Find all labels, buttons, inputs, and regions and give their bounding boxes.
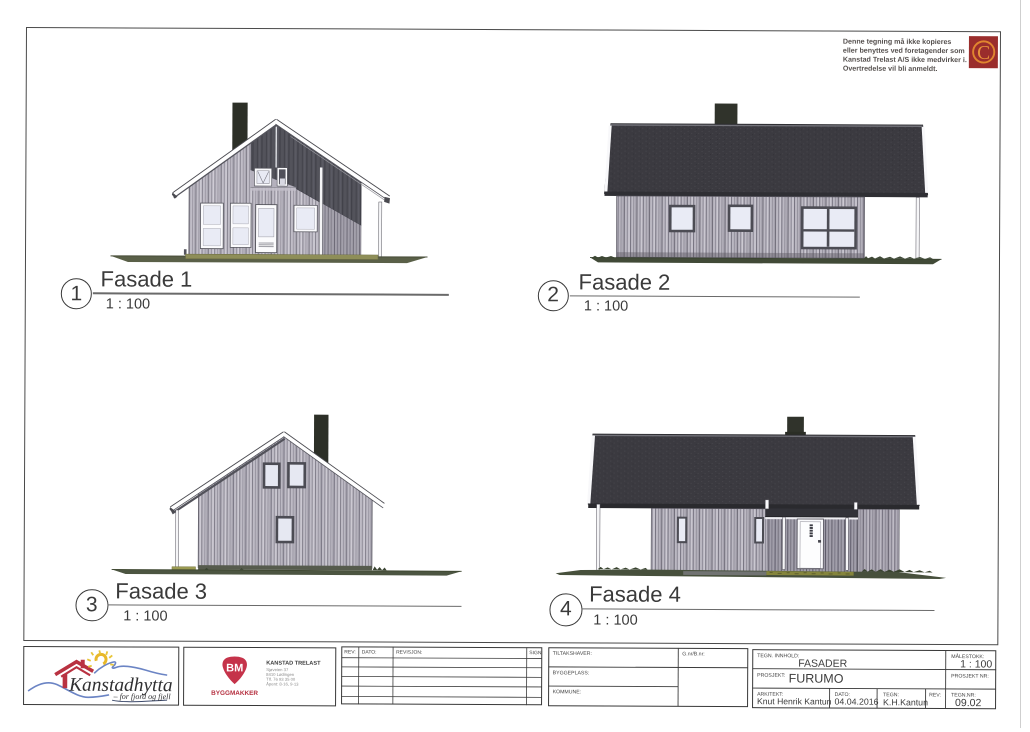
svg-text:FURUMO: FURUMO: [788, 672, 843, 686]
svg-text:REVISJON:: REVISJON:: [396, 650, 422, 656]
svg-text:KANSTAD TRELAST: KANSTAD TRELAST: [266, 660, 321, 666]
svg-text:BYGGEPLASS:: BYGGEPLASS:: [553, 671, 590, 677]
svg-text:09.02: 09.02: [955, 698, 981, 708]
svg-text:G.nr/B.nr:: G.nr/B.nr:: [682, 652, 705, 658]
svg-text:SIGN:: SIGN:: [530, 650, 542, 656]
svg-text:04.04.2016: 04.04.2016: [834, 697, 878, 707]
svg-text:KOMMUNE:: KOMMUNE:: [553, 690, 582, 696]
svg-text:Knut Henrik Kantun: Knut Henrik Kantun: [757, 696, 832, 706]
svg-text:PROSJEKT:: PROSJEKT:: [757, 673, 785, 679]
svg-text:Åpent: 8-16, 9-13: Åpent: 8-16, 9-13: [266, 681, 299, 686]
svg-text:– for fjord og fjell: – for fjord og fjell: [113, 691, 172, 700]
svg-text:1 : 100: 1 : 100: [960, 660, 992, 671]
svg-text:C: C: [977, 43, 990, 64]
svg-text:REV:: REV:: [345, 650, 356, 656]
svg-text:TILTAKSHAVER:: TILTAKSHAVER:: [553, 651, 592, 657]
svg-text:FASADER: FASADER: [798, 659, 847, 670]
svg-text:TEGN. INNHOLD:: TEGN. INNHOLD:: [757, 653, 799, 659]
svg-text:DATO:: DATO:: [362, 650, 377, 656]
svg-text:BYGGMAKKER: BYGGMAKKER: [211, 689, 258, 696]
svg-text:BM: BM: [226, 662, 243, 674]
svg-text:PROSJEKT NR:: PROSJEKT NR:: [951, 674, 989, 680]
svg-text:REV:: REV:: [929, 693, 941, 699]
svg-text:K.H.Kantun: K.H.Kantun: [883, 698, 928, 708]
